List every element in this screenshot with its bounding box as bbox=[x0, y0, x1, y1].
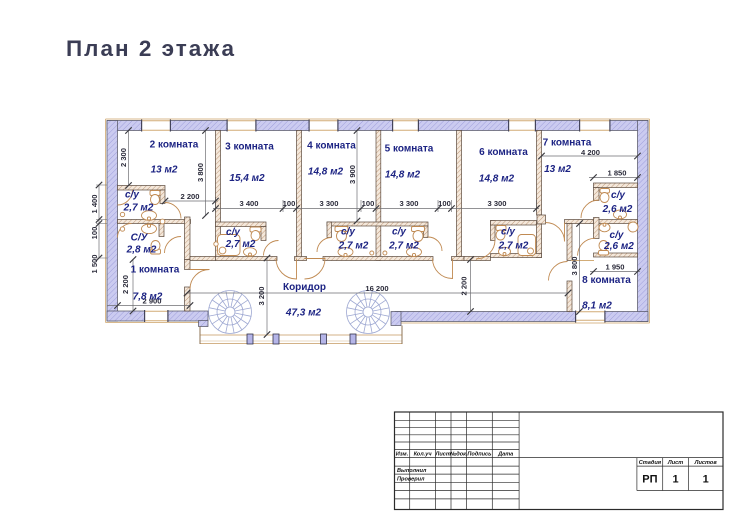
svg-text:3 200: 3 200 bbox=[257, 286, 266, 305]
svg-text:с/у: с/у bbox=[125, 190, 139, 201]
svg-text:Изм.: Изм. bbox=[396, 452, 409, 458]
svg-text:1 950: 1 950 bbox=[605, 263, 624, 272]
svg-text:С/У: С/У bbox=[131, 233, 149, 244]
svg-text:4 комната: 4 комната bbox=[307, 141, 356, 152]
svg-text:4 200: 4 200 bbox=[581, 148, 600, 157]
svg-text:3 900: 3 900 bbox=[348, 165, 357, 184]
svg-text:2,7 м2: 2,7 м2 bbox=[225, 239, 256, 250]
svg-text:с/у: с/у bbox=[226, 227, 240, 238]
svg-text:100: 100 bbox=[362, 199, 375, 208]
svg-text:Проверил: Проверил bbox=[397, 476, 425, 482]
svg-text:1 400: 1 400 bbox=[90, 194, 99, 213]
svg-text:3 300: 3 300 bbox=[319, 199, 338, 208]
svg-text:3 400: 3 400 bbox=[239, 199, 258, 208]
svg-text:Выполнил: Выполнил bbox=[397, 468, 427, 474]
svg-text:14,8 м2: 14,8 м2 bbox=[385, 170, 421, 181]
svg-text:Стадия: Стадия bbox=[639, 460, 662, 466]
svg-text:2,7 м2: 2,7 м2 bbox=[498, 241, 529, 252]
svg-text:2,6 м2: 2,6 м2 bbox=[602, 204, 633, 215]
svg-text:7,8 м2: 7,8 м2 bbox=[133, 292, 163, 303]
svg-text:1: 1 bbox=[673, 474, 679, 486]
svg-text:РП: РП bbox=[642, 474, 657, 486]
svg-text:1: 1 bbox=[703, 474, 709, 486]
svg-text:6 комната: 6 комната bbox=[479, 147, 528, 158]
svg-text:1 850: 1 850 bbox=[607, 169, 626, 178]
svg-text:с/у: с/у bbox=[341, 227, 355, 238]
svg-text:13 м2: 13 м2 bbox=[151, 165, 178, 176]
svg-text:с/у: с/у bbox=[611, 190, 625, 201]
svg-text:2,7 м2: 2,7 м2 bbox=[123, 203, 154, 214]
svg-text:100: 100 bbox=[90, 227, 99, 240]
svg-text:3 800: 3 800 bbox=[570, 256, 579, 275]
svg-text:с/у: с/у bbox=[392, 227, 406, 238]
svg-text:2 200: 2 200 bbox=[121, 275, 130, 294]
svg-text:8,1 м2: 8,1 м2 bbox=[582, 301, 612, 312]
svg-text:8 комната: 8 комната bbox=[582, 275, 631, 286]
svg-text:Листов: Листов bbox=[694, 460, 718, 466]
svg-text:2 200: 2 200 bbox=[460, 276, 469, 295]
svg-text:с/у: с/у bbox=[501, 227, 515, 238]
svg-text:3 комната: 3 комната bbox=[225, 142, 274, 153]
svg-text:1 500: 1 500 bbox=[90, 254, 99, 273]
svg-text:Коридор: Коридор bbox=[283, 282, 326, 293]
svg-text:2,7 м2: 2,7 м2 bbox=[388, 241, 419, 252]
svg-text:100: 100 bbox=[438, 199, 451, 208]
svg-text:№док.: №док. bbox=[450, 452, 468, 458]
svg-text:3 300: 3 300 bbox=[487, 199, 506, 208]
svg-text:2,6 м2: 2,6 м2 bbox=[603, 241, 634, 252]
svg-text:2,7 м2: 2,7 м2 bbox=[338, 241, 369, 252]
svg-text:16 200: 16 200 bbox=[365, 284, 388, 293]
svg-text:Подпись: Подпись bbox=[467, 452, 491, 458]
svg-text:План 2 этажа: План 2 этажа bbox=[66, 36, 236, 61]
svg-text:14,8 м2: 14,8 м2 bbox=[308, 167, 344, 178]
svg-text:Кол.уч: Кол.уч bbox=[414, 452, 433, 458]
svg-text:14,8 м2: 14,8 м2 bbox=[479, 174, 515, 185]
svg-text:с/у: с/у bbox=[610, 230, 624, 241]
svg-text:100: 100 bbox=[283, 199, 296, 208]
svg-text:Дата: Дата bbox=[497, 452, 513, 458]
svg-text:7 комната: 7 комната bbox=[543, 138, 592, 149]
svg-text:2 300: 2 300 bbox=[119, 148, 128, 167]
svg-text:5 комната: 5 комната bbox=[385, 144, 434, 155]
svg-text:3 300: 3 300 bbox=[399, 199, 418, 208]
svg-text:2 200: 2 200 bbox=[180, 192, 199, 201]
svg-text:15,4 м2: 15,4 м2 bbox=[229, 173, 265, 184]
svg-text:13 м2: 13 м2 bbox=[544, 164, 571, 175]
svg-text:1 комната: 1 комната bbox=[131, 265, 180, 276]
svg-text:2 комната: 2 комната bbox=[150, 140, 199, 151]
svg-text:3 800: 3 800 bbox=[196, 163, 205, 182]
svg-text:2,8 м2: 2,8 м2 bbox=[126, 245, 157, 256]
svg-text:47,3 м2: 47,3 м2 bbox=[285, 308, 322, 319]
svg-text:Лист: Лист bbox=[667, 460, 683, 466]
svg-text:Лист: Лист bbox=[435, 452, 451, 458]
